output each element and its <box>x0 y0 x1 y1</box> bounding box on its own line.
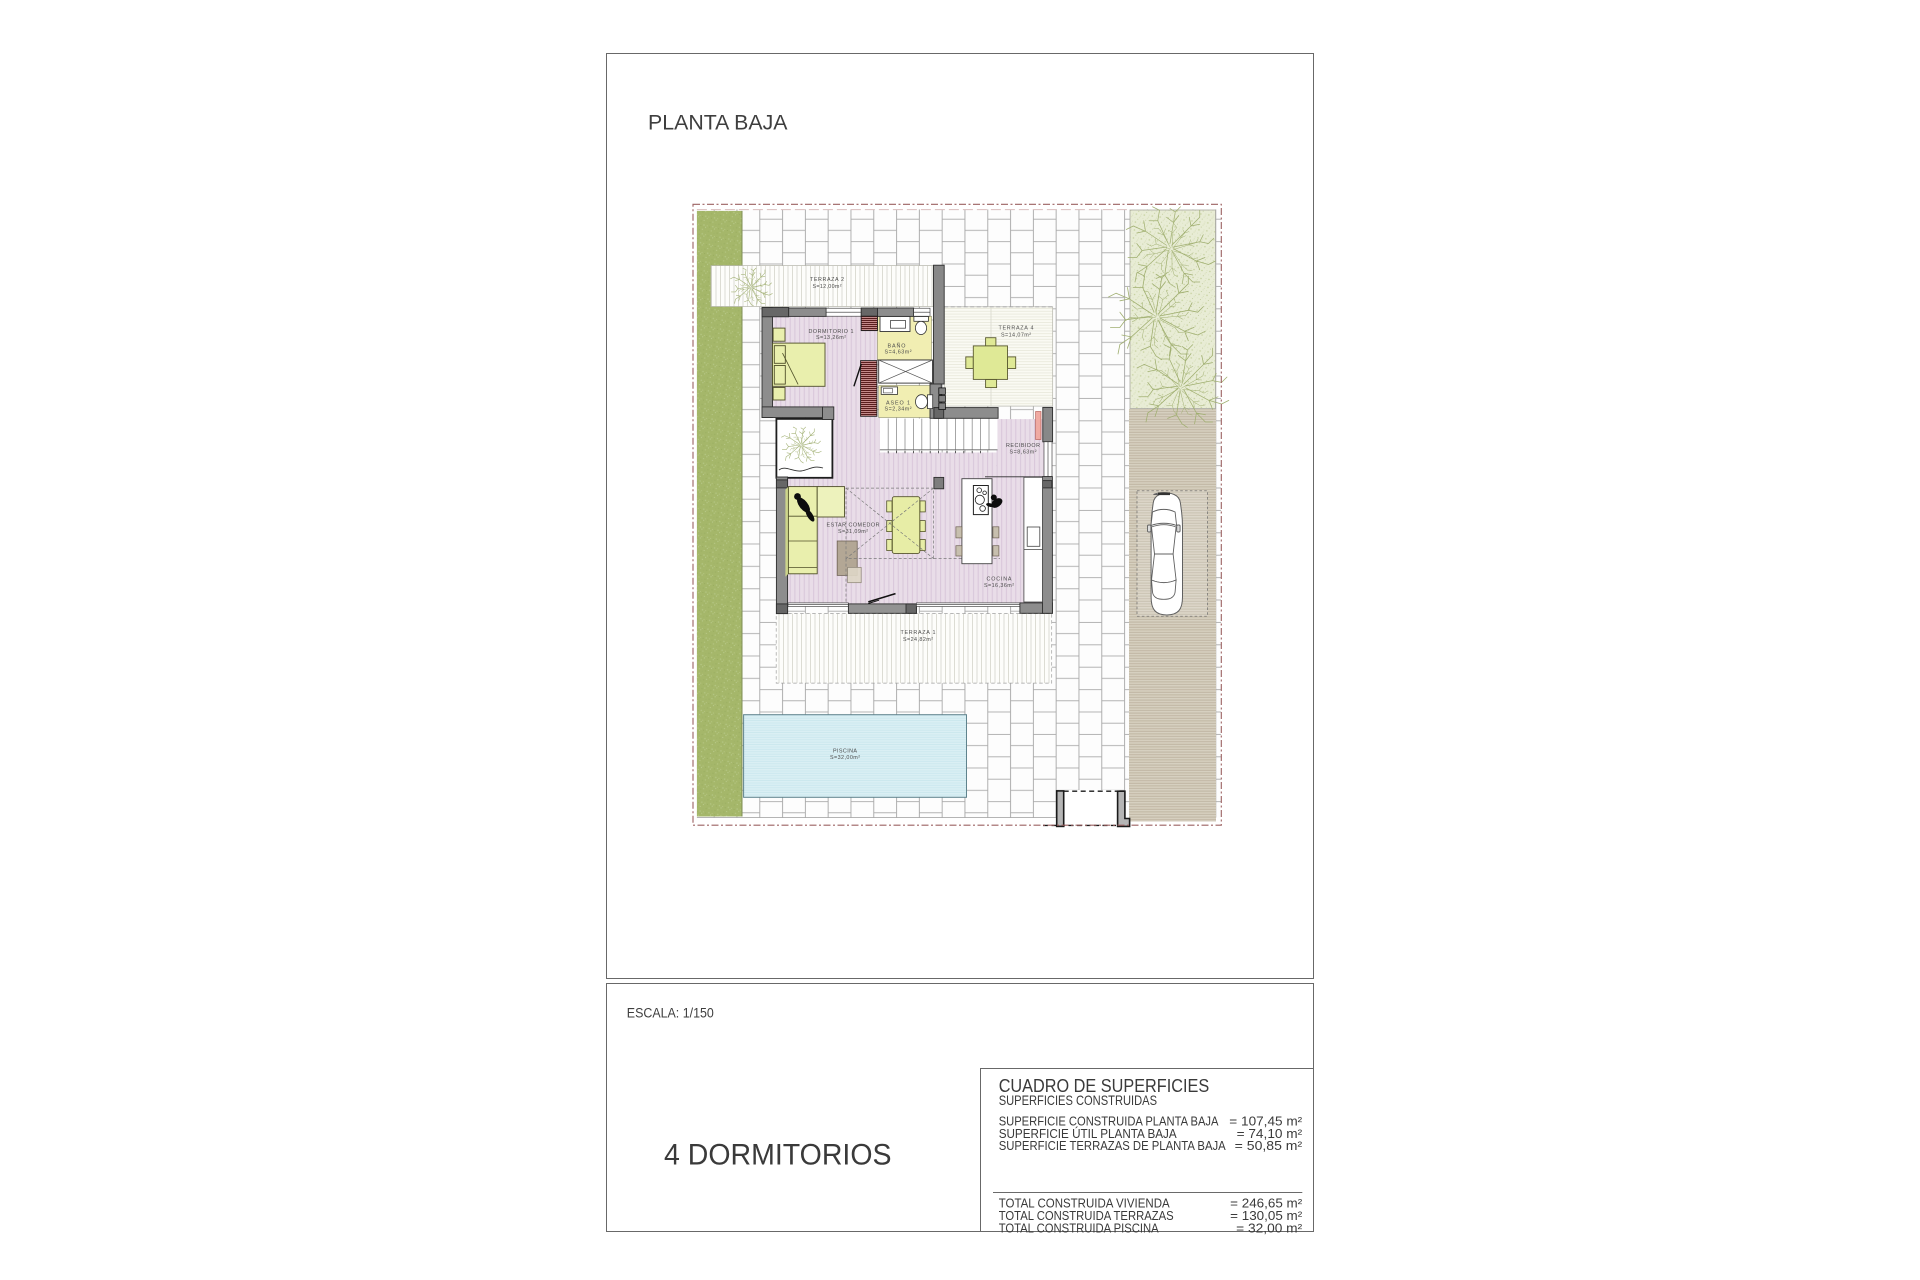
svg-text:S=12,00m²: S=12,00m² <box>813 284 842 290</box>
svg-text:PISCINA: PISCINA <box>833 748 857 754</box>
svg-text:ASEO 1: ASEO 1 <box>886 400 910 406</box>
svg-text:RECIBIDOR: RECIBIDOR <box>1006 443 1040 449</box>
svg-text:S=8,63m²: S=8,63m² <box>1010 449 1037 455</box>
svg-text:TERRAZA 1: TERRAZA 1 <box>901 630 936 636</box>
svg-text:SUPERFICIES CONSTRUIDAS: SUPERFICIES CONSTRUIDAS <box>999 1092 1157 1108</box>
svg-text:BAÑO: BAÑO <box>888 342 906 349</box>
svg-text:ESCALA: 1/150: ESCALA: 1/150 <box>627 1006 714 1021</box>
svg-text:S=4,63m²: S=4,63m² <box>885 350 912 356</box>
svg-text:DORMITORIO 1: DORMITORIO 1 <box>809 329 854 335</box>
svg-text:ESTAR COMEDOR: ESTAR COMEDOR <box>827 522 880 528</box>
svg-text:S=16,36m²: S=16,36m² <box>984 583 1014 589</box>
svg-text:TERRAZA 4: TERRAZA 4 <box>999 326 1034 332</box>
svg-text:4 DORMITORIOS: 4 DORMITORIOS <box>664 1138 892 1171</box>
svg-text:S=32,00m²: S=32,00m² <box>830 755 860 761</box>
svg-text:SUPERFICIE TERRAZAS DE PLANTA: SUPERFICIE TERRAZAS DE PLANTA BAJA <box>999 1138 1226 1153</box>
svg-text:S=31,09m²: S=31,09m² <box>838 529 868 535</box>
svg-text:COCINA: COCINA <box>987 576 1012 582</box>
svg-text:TOTAL CONSTRUIDA PISCINA: TOTAL CONSTRUIDA PISCINA <box>999 1221 1159 1236</box>
svg-text:S=13,26m²: S=13,26m² <box>816 335 846 341</box>
svg-text:= 50,85 m²: = 50,85 m² <box>1235 1138 1303 1153</box>
svg-text:PLANTA BAJA: PLANTA BAJA <box>648 110 788 135</box>
svg-text:= 32,00 m²: = 32,00 m² <box>1236 1221 1303 1236</box>
svg-text:TERRAZA 2: TERRAZA 2 <box>810 277 844 283</box>
svg-text:S=24,82m²: S=24,82m² <box>903 637 933 643</box>
svg-text:S=14,07m²: S=14,07m² <box>1001 333 1031 339</box>
svg-text:S=2,34m²: S=2,34m² <box>885 407 912 413</box>
